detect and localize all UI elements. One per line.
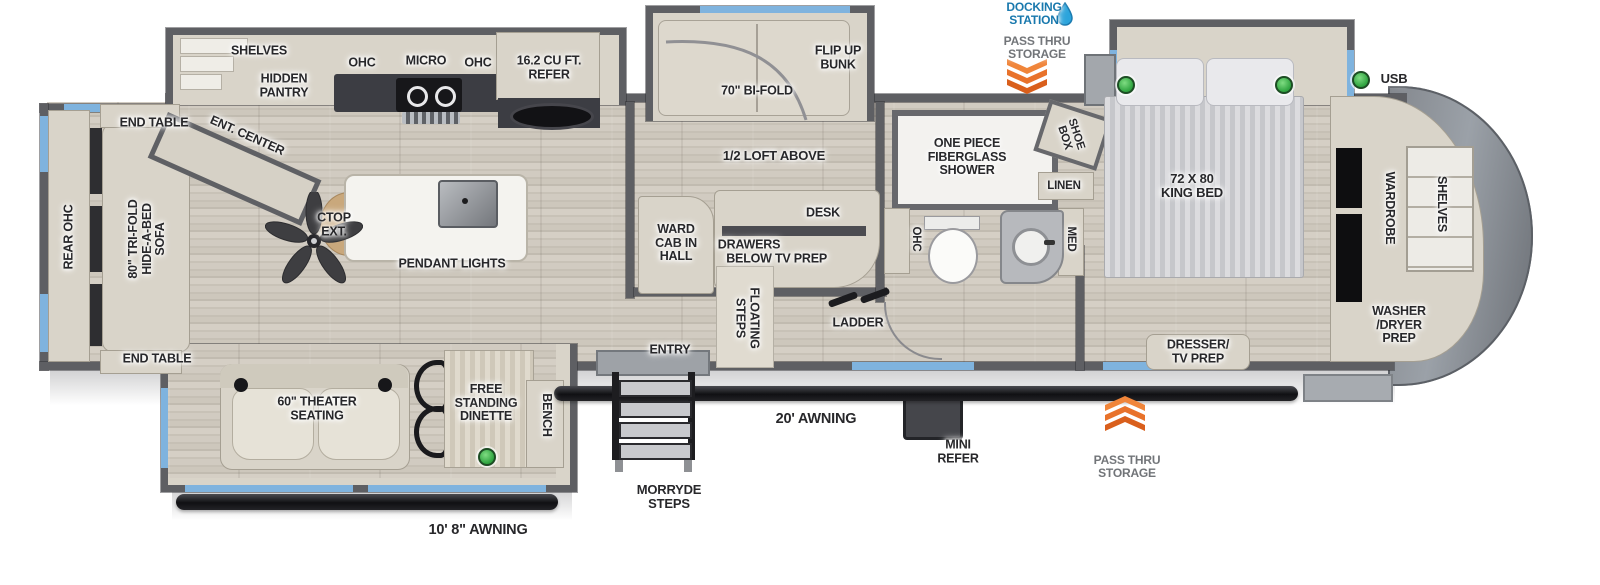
- refrigerator-cabinet: [496, 32, 600, 100]
- closet-door-opening: [1336, 148, 1362, 208]
- burner-icon: [407, 86, 428, 107]
- ceiling-fan-icon: [265, 192, 363, 290]
- morryde-step-tread: [619, 443, 692, 460]
- bathroom-sink-icon: [1012, 228, 1050, 266]
- cupholder-icon: [378, 378, 392, 392]
- chevron-up-icon: [1102, 396, 1148, 432]
- cupholder-icon: [234, 378, 248, 392]
- morryde-steps-rail: [612, 372, 619, 460]
- usb-led-icon: [478, 448, 496, 466]
- window-rear-2: [40, 294, 48, 352]
- king-bed: [1104, 96, 1304, 278]
- kitchen-sink-icon: [510, 103, 594, 130]
- label-awning-20: 20' AWNING: [776, 412, 857, 428]
- rear-ohc-cabinet: [48, 110, 90, 362]
- chevron-down-icon: [1004, 58, 1050, 94]
- front-cap-step: [1303, 374, 1393, 402]
- theater-cushion: [318, 388, 400, 460]
- toilet-icon: [928, 228, 978, 284]
- floating-steps-platform: [716, 266, 774, 368]
- hall-wardrobe-cabinet: [638, 196, 714, 294]
- morryde-step-tread: [619, 401, 692, 418]
- label-pass-thru-storage: PASS THRU STORAGE: [1094, 454, 1161, 480]
- closet-shelves-box: [1406, 146, 1474, 272]
- desk-surface: [722, 226, 866, 236]
- label-mini-refer: MINI REFER: [937, 439, 978, 466]
- end-table-bottom: [100, 350, 182, 374]
- window-living-slide-left: [161, 388, 168, 468]
- pendant-light-dot-icon: [462, 198, 468, 204]
- label-morryde-steps: MORRYDE STEPS: [637, 483, 702, 511]
- shower-stall: [892, 110, 1058, 210]
- hidden-pantry-shelf: [180, 56, 234, 72]
- morryde-step-tread: [619, 422, 692, 439]
- morryde-step-foot: [684, 460, 692, 472]
- theater-cushion: [232, 388, 314, 460]
- label-docking-station: DOCKING STATION: [1006, 1, 1061, 27]
- hidden-pantry-shelf: [180, 38, 248, 54]
- usb-led-icon: [1352, 71, 1370, 89]
- kitchen-island: [344, 174, 528, 262]
- morryde-step-tread: [619, 380, 692, 397]
- awning-bar-10ft8: [176, 494, 558, 510]
- usb-led-icon: [1117, 76, 1135, 94]
- speaker-strip: [90, 206, 102, 272]
- wall-bottom-front: [704, 362, 1394, 370]
- faucet-icon: [1044, 240, 1055, 245]
- window-living-slide-bottom-2: [368, 485, 546, 492]
- water-drop-icon: [1056, 2, 1074, 26]
- bathroom-ohc-cabinet: [884, 208, 910, 274]
- hidden-pantry-shelf: [180, 74, 222, 90]
- window-living-slide-bottom-1: [185, 485, 353, 492]
- burner-icon: [435, 86, 456, 107]
- dresser-tv-cabinet: [1146, 334, 1250, 370]
- wall-kitchen-hall: [626, 102, 634, 298]
- closet-door-opening: [1336, 214, 1362, 302]
- linen-cabinet: [1038, 172, 1094, 200]
- window-rear-1: [40, 116, 48, 172]
- pendant-light-fixture-icon: [438, 180, 498, 228]
- window-bottom-hall: [852, 362, 974, 370]
- morryde-step-foot: [615, 460, 623, 472]
- speaker-strip: [90, 284, 102, 346]
- flip-up-bunk-arc: [648, 8, 878, 126]
- oven-grill-icon: [402, 112, 460, 124]
- speaker-strip: [90, 128, 102, 194]
- label-usb: USB: [1381, 72, 1408, 86]
- usb-led-icon: [1275, 76, 1293, 94]
- rv-floorplan: END TABLE REAR OHC 80" TRI-FOLD HIDE-A-B…: [0, 0, 1600, 585]
